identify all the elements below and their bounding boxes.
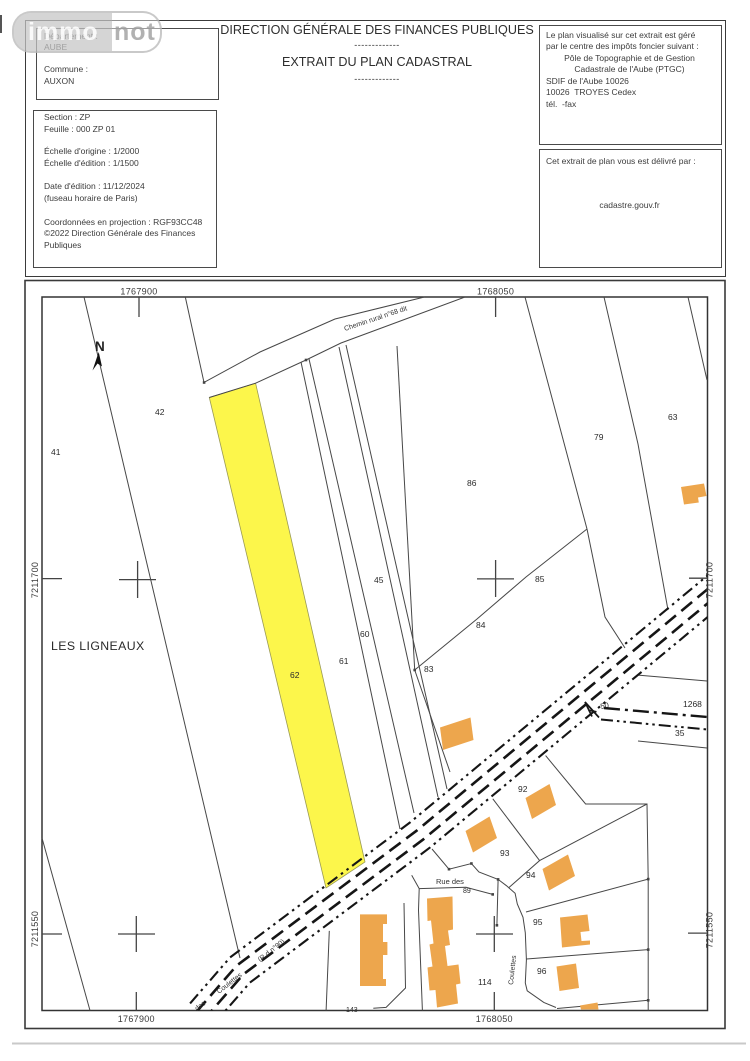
svg-text:94: 94: [526, 870, 536, 880]
svg-text:93: 93: [500, 848, 510, 858]
svg-text:LES LIGNEAUX: LES LIGNEAUX: [51, 639, 145, 653]
svg-text:7211550: 7211550: [705, 912, 715, 948]
svg-text:86: 86: [467, 478, 477, 488]
svg-text:7211700: 7211700: [30, 562, 40, 598]
svg-text:85: 85: [535, 574, 545, 584]
svg-text:92: 92: [518, 784, 528, 794]
svg-text:96: 96: [537, 966, 547, 976]
svg-text:143: 143: [346, 1007, 358, 1014]
svg-text:1268: 1268: [683, 699, 702, 709]
svg-text:114: 114: [478, 977, 492, 987]
svg-text:50: 50: [600, 700, 610, 711]
svg-text:42: 42: [155, 407, 165, 417]
svg-text:61: 61: [339, 656, 349, 666]
svg-text:89: 89: [463, 888, 471, 895]
svg-text:95: 95: [533, 917, 543, 927]
svg-text:Coulettes: Coulettes: [508, 955, 518, 986]
svg-text:45: 45: [374, 575, 384, 585]
svg-text:84: 84: [476, 620, 486, 630]
svg-text:35: 35: [675, 728, 685, 738]
svg-text:79: 79: [594, 432, 604, 442]
svg-text:63: 63: [668, 412, 678, 422]
svg-text:62: 62: [290, 670, 300, 680]
svg-text:60: 60: [360, 629, 370, 639]
svg-text:1768050: 1768050: [477, 287, 514, 297]
svg-text:1767900: 1767900: [118, 1014, 155, 1024]
svg-text:7211550: 7211550: [30, 911, 40, 947]
svg-text:83: 83: [424, 664, 434, 674]
svg-text:Rue des: Rue des: [436, 877, 464, 886]
svg-text:N: N: [95, 339, 105, 354]
svg-text:7211700: 7211700: [705, 562, 715, 598]
svg-text:1767900: 1767900: [120, 287, 157, 297]
svg-text:41: 41: [51, 447, 61, 457]
svg-text:1768050: 1768050: [476, 1014, 513, 1024]
